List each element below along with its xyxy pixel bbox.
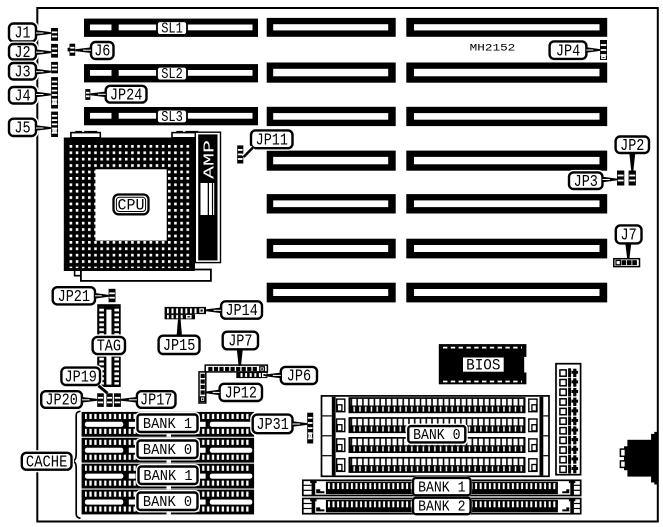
svg-text:JP21: JP21 [58, 287, 90, 306]
svg-text:BIOS: BIOS [466, 357, 500, 375]
svg-text:J2: J2 [14, 43, 30, 62]
svg-text:JP19: JP19 [65, 368, 97, 387]
svg-text:BANK 2: BANK 2 [418, 499, 465, 516]
svg-text:JP4: JP4 [556, 41, 580, 60]
svg-text:J1: J1 [14, 24, 30, 43]
svg-text:BANK 1: BANK 1 [418, 479, 465, 496]
svg-text:BANK 0: BANK 0 [413, 427, 460, 444]
svg-text:JP6: JP6 [287, 367, 311, 386]
svg-text:AMP: AMP [202, 140, 219, 179]
svg-text:JP12: JP12 [225, 384, 257, 403]
svg-text:JP14: JP14 [225, 301, 257, 320]
svg-text:MH2152: MH2152 [470, 42, 516, 54]
svg-text:J3: J3 [14, 62, 30, 81]
svg-text:SL1: SL1 [161, 22, 183, 38]
svg-text:JP7: JP7 [228, 332, 252, 351]
svg-text:JP15: JP15 [163, 336, 195, 355]
svg-text:JP20: JP20 [45, 391, 77, 410]
svg-text:SL2: SL2 [161, 67, 183, 83]
svg-text:BANK 0: BANK 0 [143, 442, 192, 459]
svg-text:J4: J4 [14, 86, 30, 105]
svg-text:BANK 1: BANK 1 [143, 468, 192, 485]
svg-text:BANK 0: BANK 0 [143, 494, 192, 511]
svg-text:TAG: TAG [97, 337, 121, 356]
svg-text:JP17: JP17 [140, 391, 172, 410]
svg-text:CACHE: CACHE [26, 452, 68, 471]
svg-text:JP31: JP31 [256, 415, 288, 434]
svg-text:J5: J5 [14, 119, 30, 138]
svg-text:JP2: JP2 [620, 136, 644, 155]
svg-text:JP24: JP24 [110, 85, 142, 104]
svg-text:J7: J7 [621, 226, 637, 245]
svg-text:BANK 1: BANK 1 [143, 416, 192, 433]
svg-text:JP11: JP11 [256, 131, 288, 150]
svg-text:SL3: SL3 [161, 110, 183, 126]
svg-text:JP3: JP3 [574, 172, 598, 191]
svg-text:J6: J6 [94, 42, 110, 61]
svg-text:CPU: CPU [118, 197, 145, 215]
